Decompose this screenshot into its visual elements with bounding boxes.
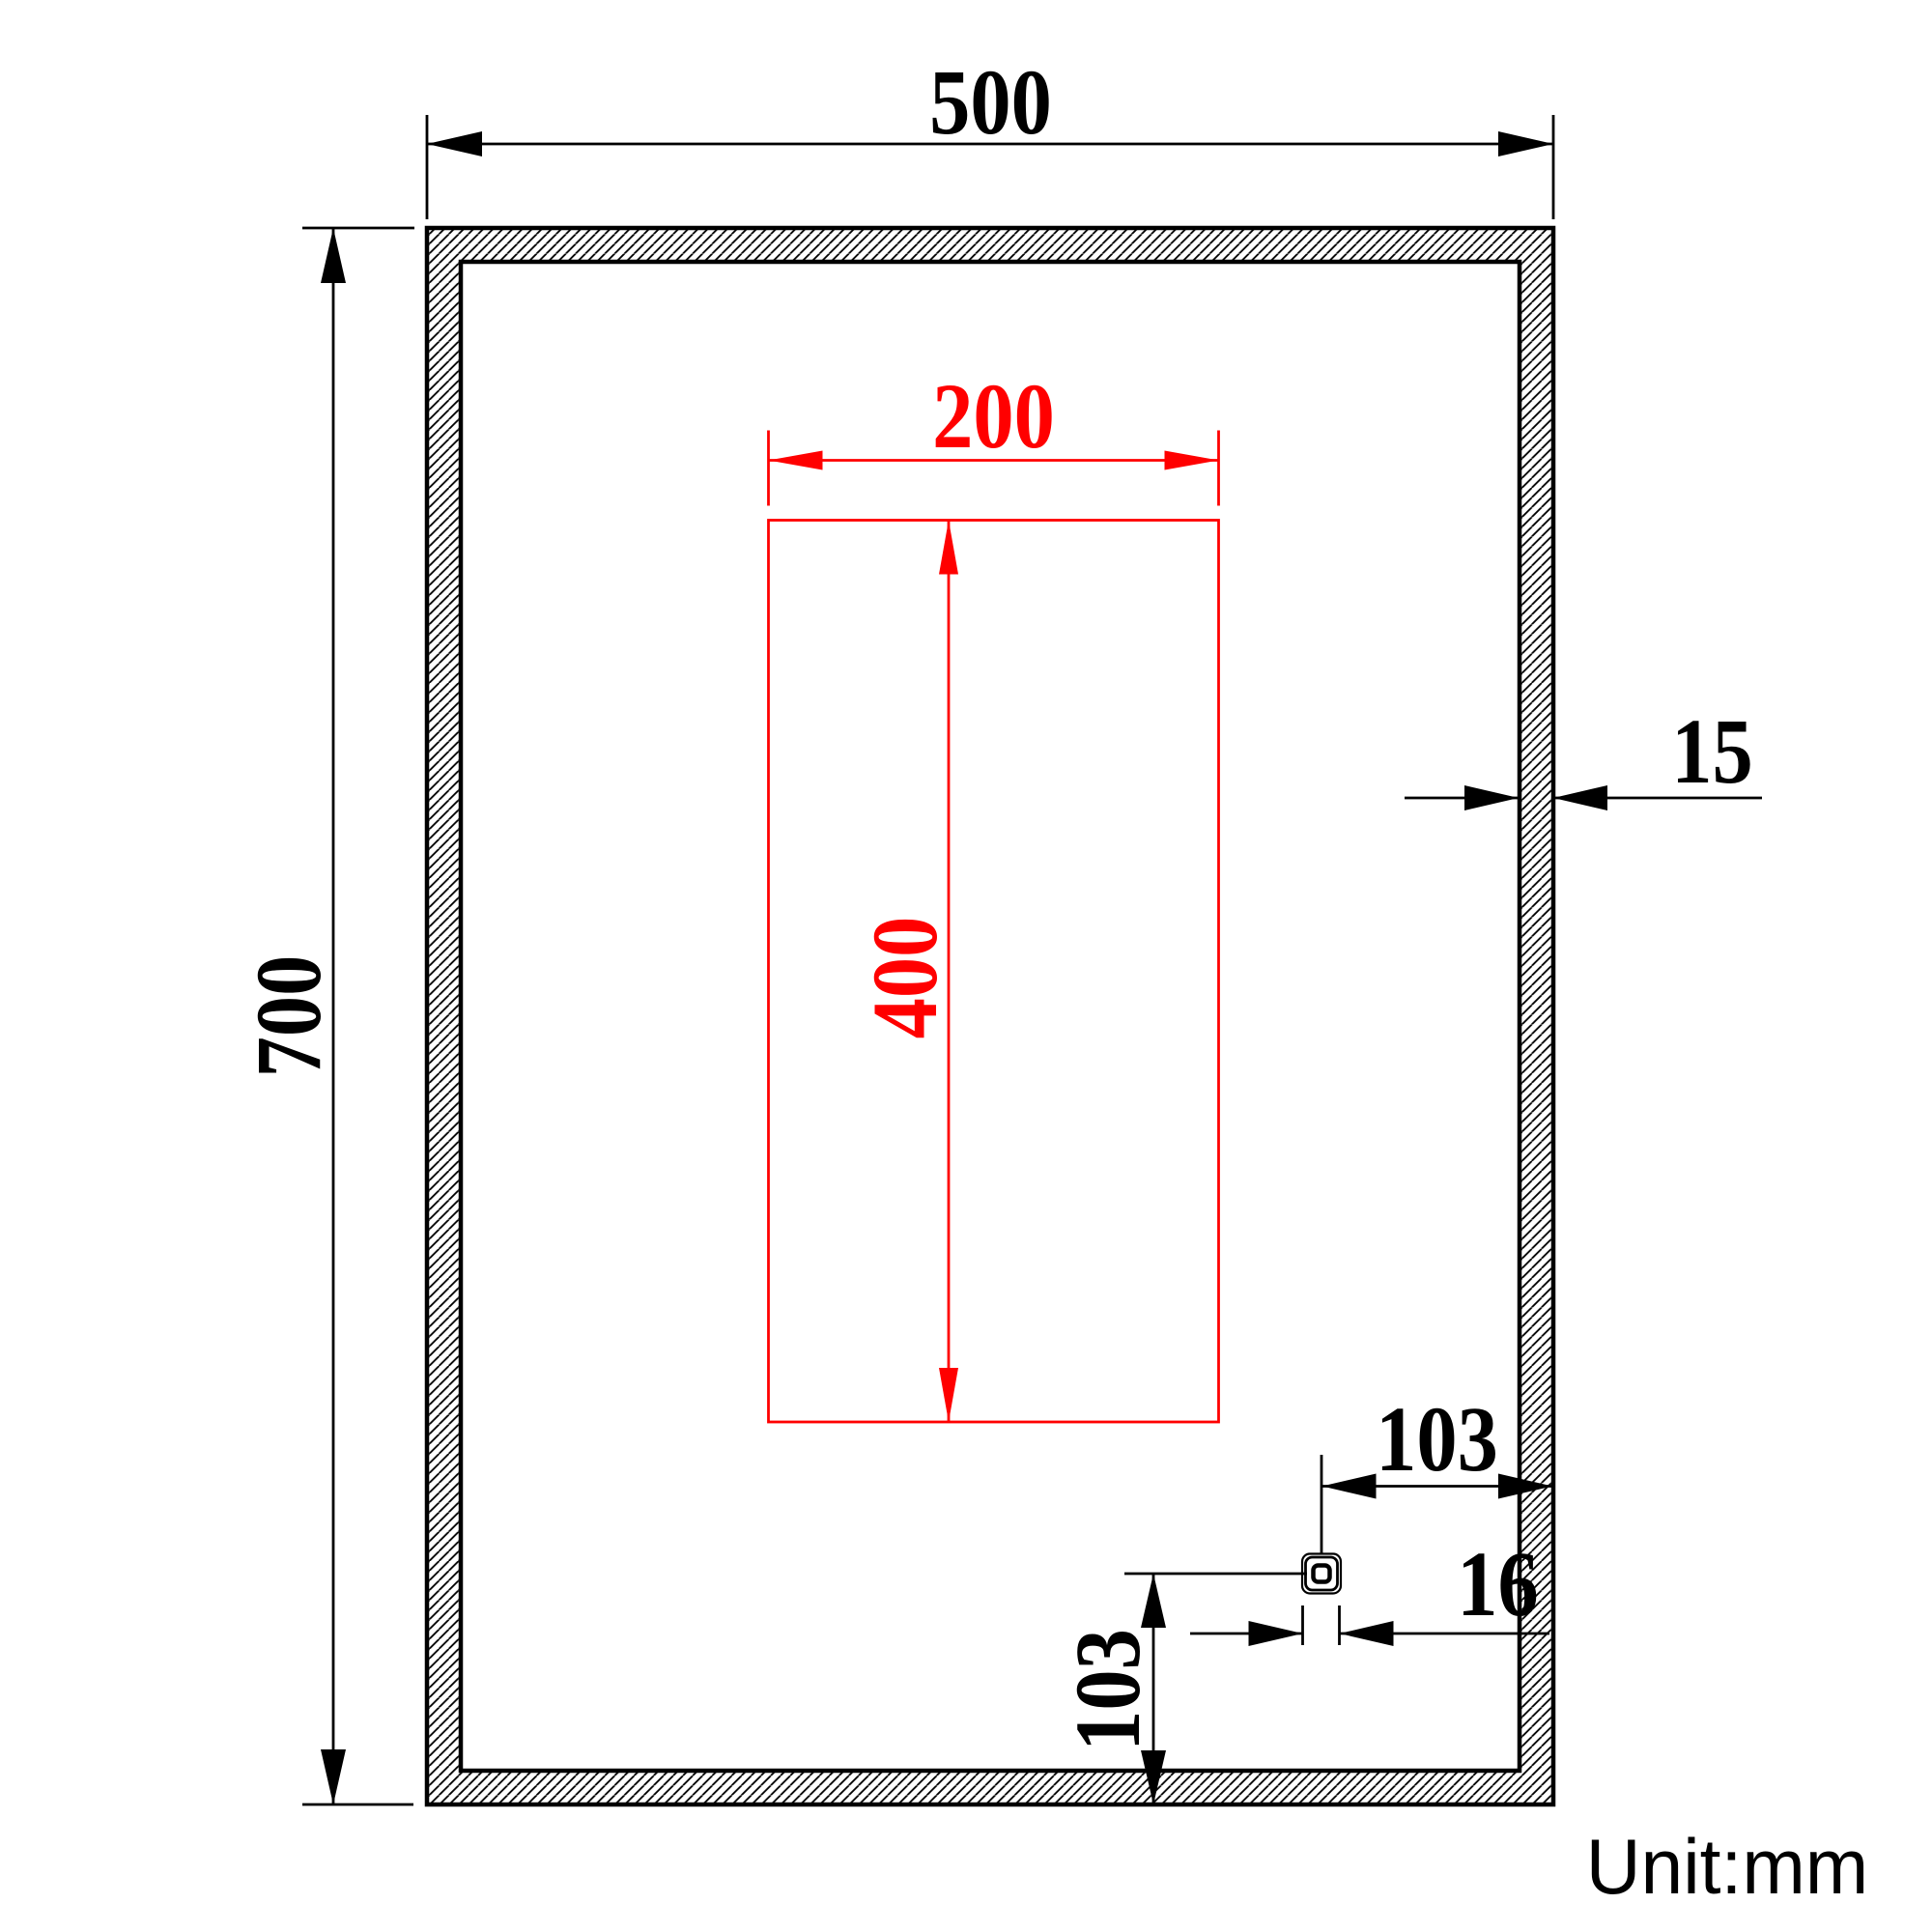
svg-text:16: 16 — [1457, 1532, 1538, 1635]
svg-text:700: 700 — [237, 955, 340, 1078]
svg-text:Unit:mm: Unit:mm — [1586, 1823, 1868, 1910]
svg-text:500: 500 — [929, 50, 1052, 154]
svg-text:200: 200 — [932, 364, 1055, 468]
svg-text:103: 103 — [1376, 1387, 1498, 1491]
svg-text:400: 400 — [853, 917, 956, 1039]
svg-text:15: 15 — [1671, 699, 1752, 803]
svg-text:103: 103 — [1056, 1629, 1159, 1751]
